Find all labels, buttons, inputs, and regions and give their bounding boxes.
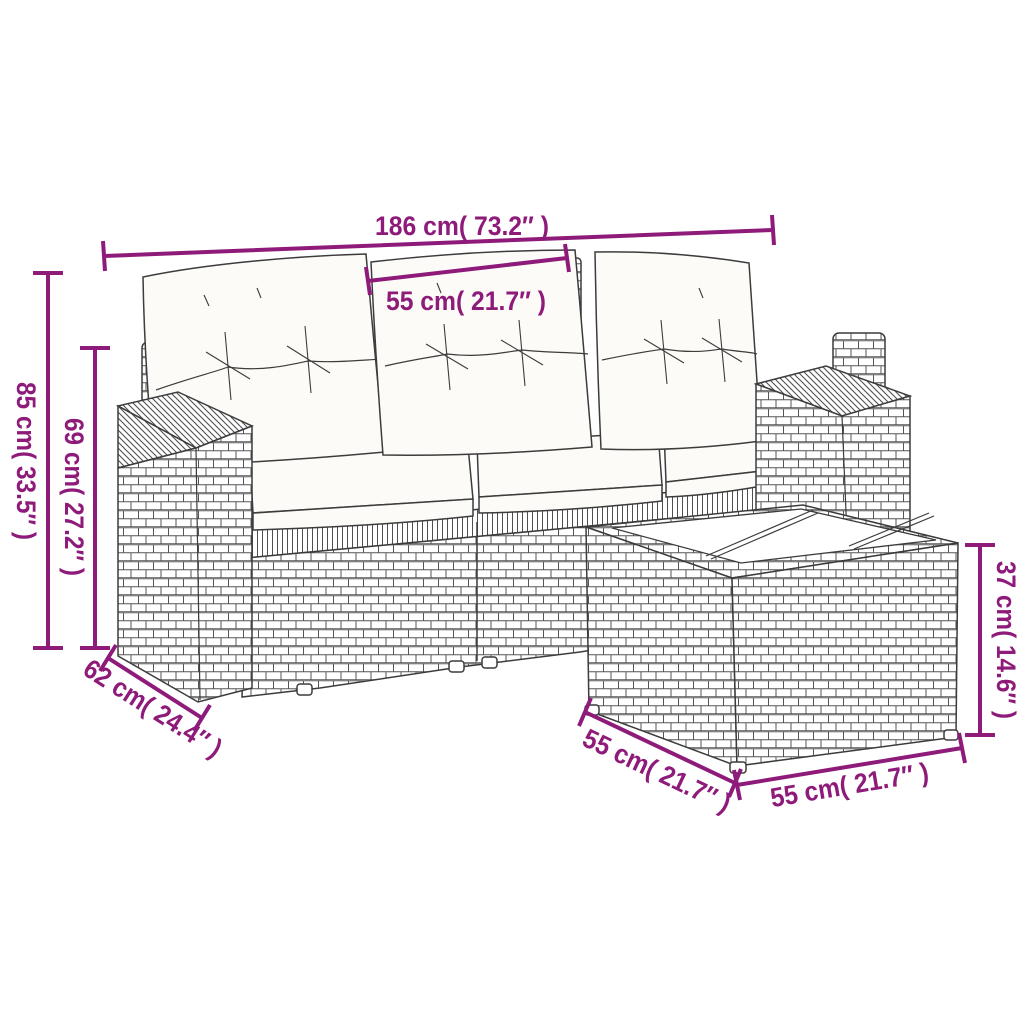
dim-label-backrest-height: 69 cm( 27.2″ ) bbox=[59, 418, 89, 576]
table-foot bbox=[944, 730, 958, 740]
side-table bbox=[585, 505, 958, 773]
sofa-illustration bbox=[118, 250, 958, 773]
dimension-backrest-height: 69 cm( 27.2″ ) bbox=[59, 348, 110, 648]
dim-label-table-height: 37 cm( 14.6″ ) bbox=[991, 561, 1021, 719]
sofa-foot bbox=[482, 657, 497, 668]
dimension-sofa-total-height: 85 cm( 33.5″ ) bbox=[11, 273, 63, 648]
dim-label-seat-module-width: 55 cm( 21.7″ ) bbox=[386, 286, 546, 316]
left-armrest bbox=[118, 392, 252, 702]
sofa-foot bbox=[449, 661, 464, 672]
dim-label-sofa-total-height: 85 cm( 33.5″ ) bbox=[11, 382, 41, 540]
diagram-canvas: 186 cm( 73.2″ ) 55 cm( 21.7″ ) 85 cm( 33… bbox=[0, 0, 1024, 1024]
dim-label-sofa-total-width: 186 cm( 73.2″ ) bbox=[375, 211, 549, 241]
table-right-face bbox=[732, 543, 958, 766]
sofa-foot bbox=[297, 684, 312, 695]
dimension-diagram: 186 cm( 73.2″ ) 55 cm( 21.7″ ) 85 cm( 33… bbox=[0, 0, 1024, 1024]
dimension-table-height: 37 cm( 14.6″ ) bbox=[965, 545, 1021, 735]
